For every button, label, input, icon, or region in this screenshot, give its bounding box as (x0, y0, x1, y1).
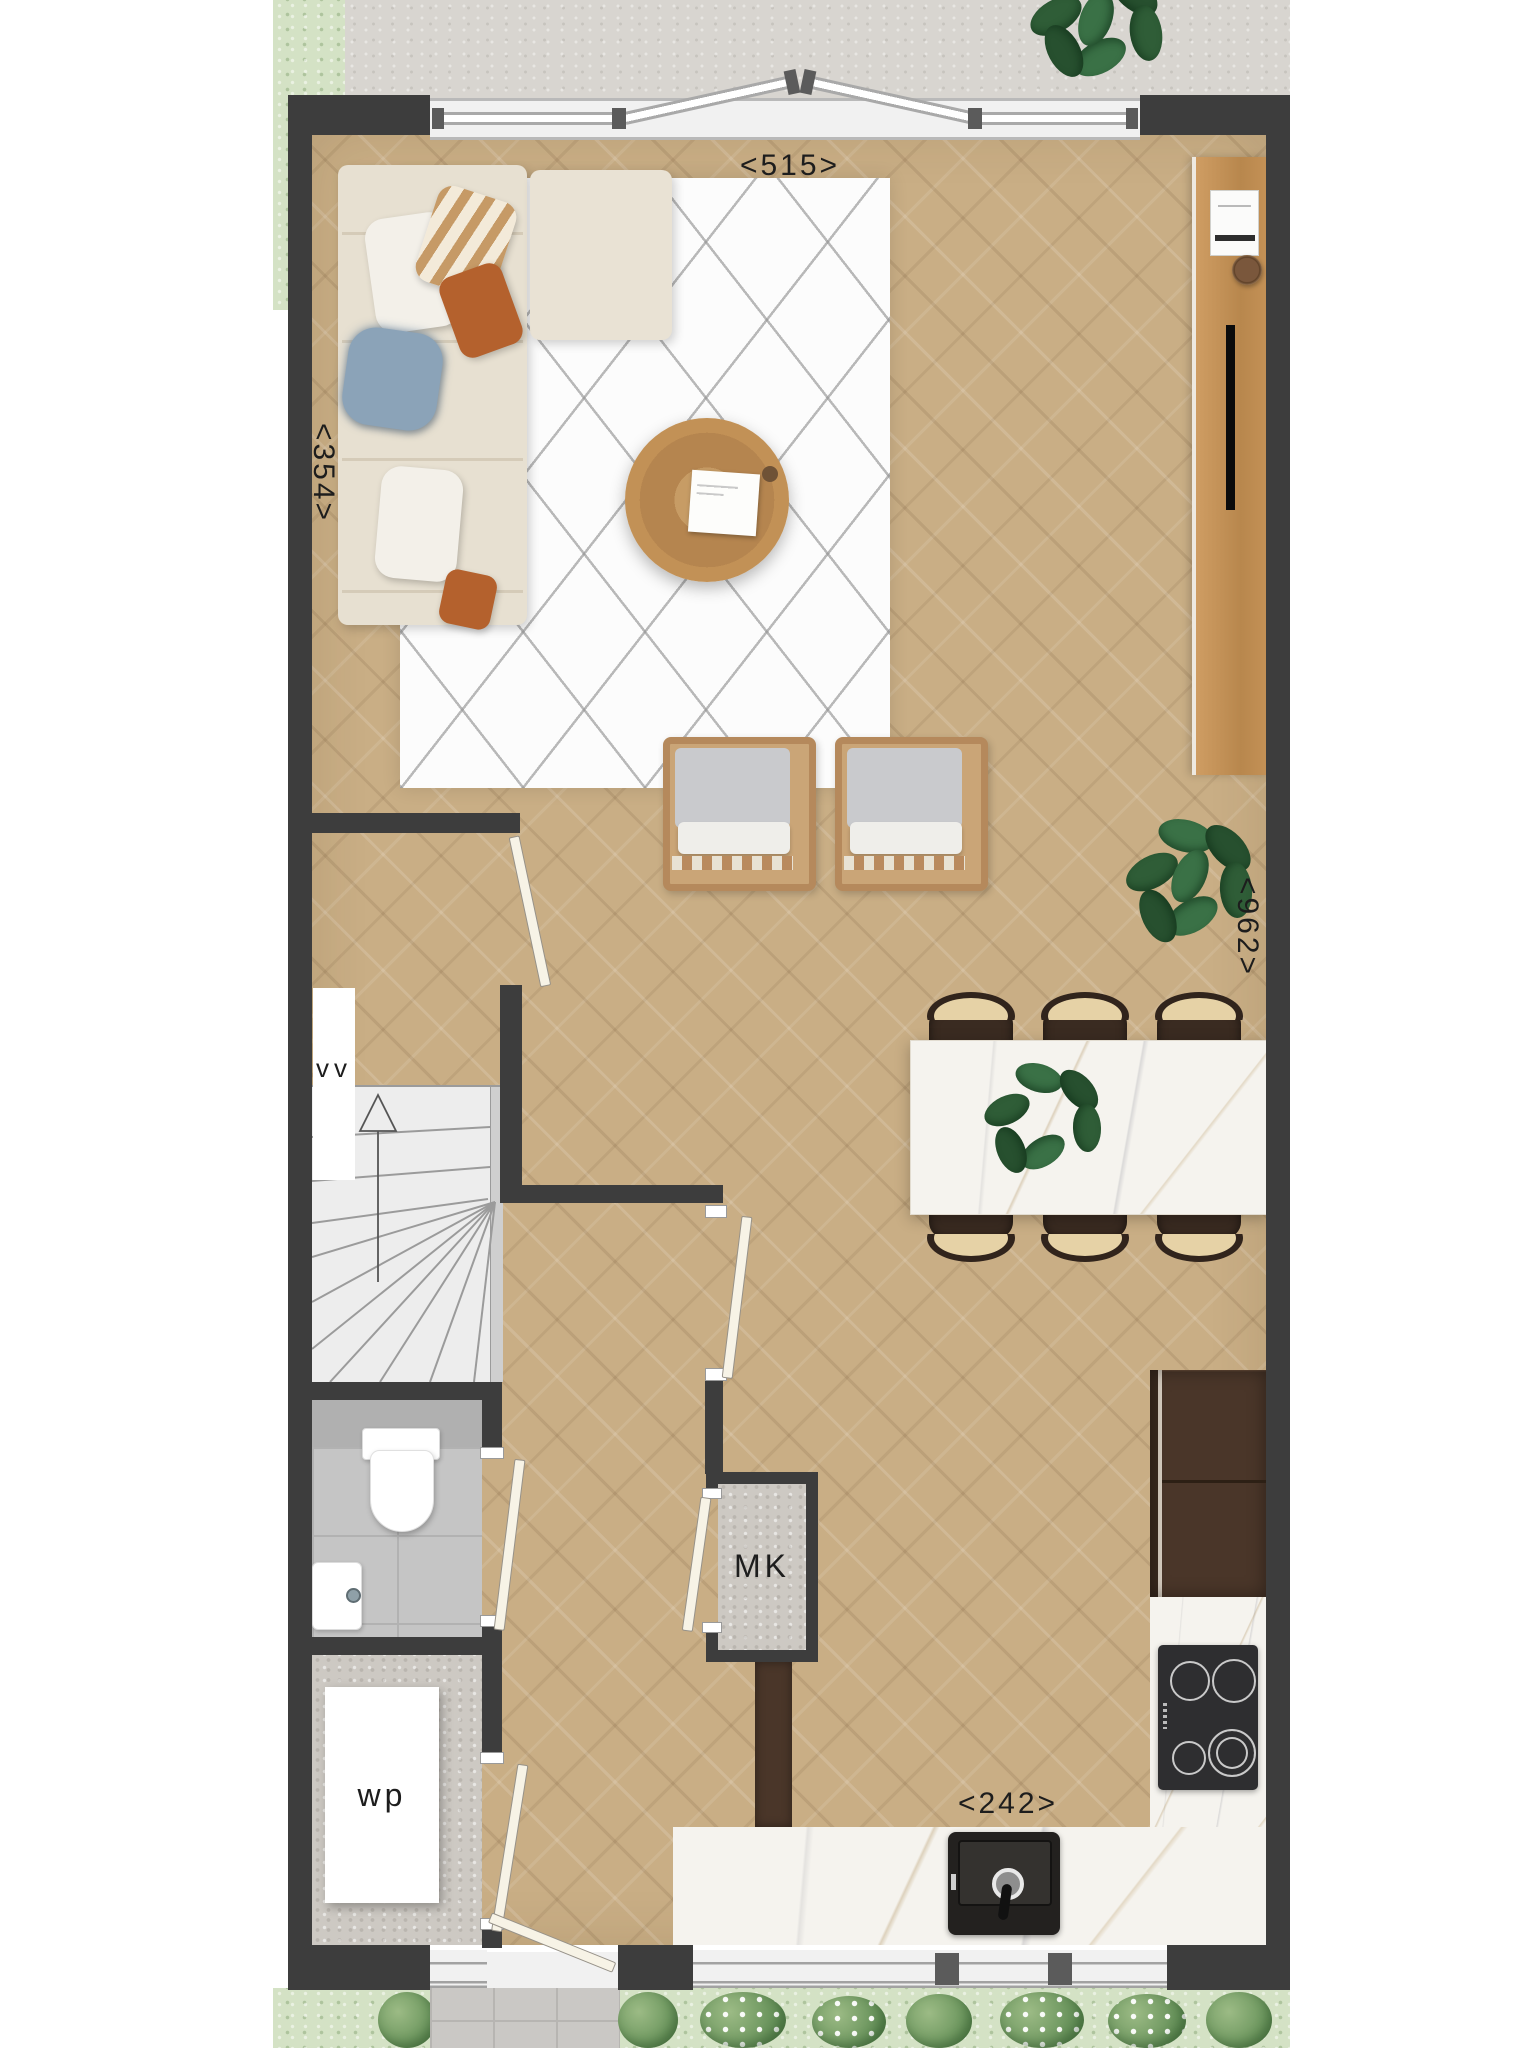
wall-toilet-right-upper (482, 1382, 502, 1457)
armchair-seat-cushion (678, 822, 790, 854)
wall-left (288, 95, 312, 1990)
wall-bottom-left (288, 1945, 430, 1990)
door-hinge (612, 108, 626, 129)
armchair-webbing (844, 856, 965, 870)
wall-hall-bottom (500, 1185, 723, 1203)
flower-bush (1000, 1992, 1084, 2048)
plant-leaf (1126, 3, 1165, 63)
heat-pump-label: wp (332, 1773, 432, 1817)
hob-burner (1170, 1661, 1210, 1701)
kitchen-sink (948, 1832, 1060, 1935)
wall-wp-right-upper (482, 1655, 502, 1762)
bowl (1232, 255, 1262, 285)
bush (378, 1992, 436, 2048)
window-mullion (1048, 1953, 1072, 1985)
sidelight-window (430, 1950, 487, 1988)
kitchen-window (693, 1950, 1167, 1988)
door-hinge (1126, 108, 1138, 129)
kitchen-tall-cabinets (1150, 1370, 1266, 1597)
wall-top-left (288, 95, 430, 135)
door-jamb (702, 1622, 722, 1633)
wall-bottom-mid (618, 1945, 693, 1990)
flower-bush (1108, 1994, 1186, 2048)
wall-toilet-bottom (312, 1637, 502, 1655)
washbasin-faucet (346, 1588, 361, 1603)
armchair-back-cushion (675, 748, 790, 828)
hob-controls (1163, 1703, 1167, 1729)
dining-chair-backrest (927, 992, 1015, 1020)
door-hinge (968, 108, 982, 129)
dining-chair-backrest (1041, 1234, 1129, 1262)
meter-cupboard-label: MK (712, 1544, 812, 1588)
wall-bottom-right (1167, 1945, 1290, 1990)
toilet-bowl (370, 1450, 434, 1532)
hob (1158, 1645, 1258, 1790)
wall-mk-bottom (706, 1650, 818, 1662)
wall-hall-right-lower (705, 1380, 723, 1474)
dining-chair-backrest (1155, 1234, 1243, 1262)
floor-plan: wp MK vv (0, 0, 1536, 2048)
wall-hall-right-upper (500, 985, 522, 1193)
bush (618, 1992, 678, 2048)
armchair (663, 737, 816, 891)
dimension-right: <962> (1222, 852, 1272, 1002)
kitchen-tall-cabinet-hall (755, 1662, 792, 1827)
folding-door-panel (434, 112, 617, 125)
door-jamb (480, 1447, 504, 1459)
wall-top-right (1140, 95, 1290, 135)
magazine (688, 470, 760, 537)
wall-hall-top (312, 813, 520, 833)
dining-chair-backrest (1041, 992, 1129, 1020)
door-jamb (480, 1752, 504, 1764)
dining-table-plant (975, 1050, 1123, 1192)
flower-bush (700, 1992, 786, 2048)
hob-burner (1212, 1659, 1256, 1703)
pillow-blue (339, 324, 447, 434)
sink-drain-control (951, 1874, 956, 1890)
wall-mk-top (706, 1472, 818, 1484)
terrace-plant (1020, 0, 1180, 85)
armchair-back-cushion (847, 748, 962, 828)
wall-right (1266, 95, 1290, 1990)
bush (1206, 1992, 1272, 2048)
folding-door-panel (982, 112, 1138, 125)
sideboard-groove (1226, 325, 1235, 510)
void-label: vv (304, 1050, 364, 1086)
hob-burner (1208, 1729, 1256, 1777)
dimension-left: <354> (298, 398, 348, 548)
wall-mk-right (806, 1472, 818, 1662)
sofa-cushion-seam (342, 458, 523, 461)
window-mullion (935, 1953, 959, 1985)
hob-burner (1172, 1741, 1206, 1775)
coffee-table-dot (762, 466, 778, 482)
door-hinge (432, 108, 444, 129)
dimension-kitchen: <242> (928, 1786, 1088, 1822)
dining-chair-backrest (927, 1234, 1015, 1262)
wall-toilet-top (312, 1382, 502, 1400)
armchair-seat-cushion (850, 822, 962, 854)
pillow-white (373, 465, 464, 584)
front-path (430, 1988, 620, 2048)
ottoman (530, 170, 672, 340)
flower-bush (812, 1996, 886, 2048)
plant-leaf (1072, 1104, 1102, 1153)
cabinet-seam (1162, 1480, 1266, 1483)
sideboard (1192, 157, 1270, 775)
door-jamb (705, 1205, 727, 1218)
bush (906, 1994, 972, 2048)
plant-leaf (1012, 1058, 1066, 1098)
dimension-top: <515> (690, 148, 890, 184)
armchair (835, 737, 988, 891)
wall-mk-left-bottom (706, 1630, 718, 1650)
armchair-webbing (672, 856, 793, 870)
book (1210, 190, 1259, 256)
